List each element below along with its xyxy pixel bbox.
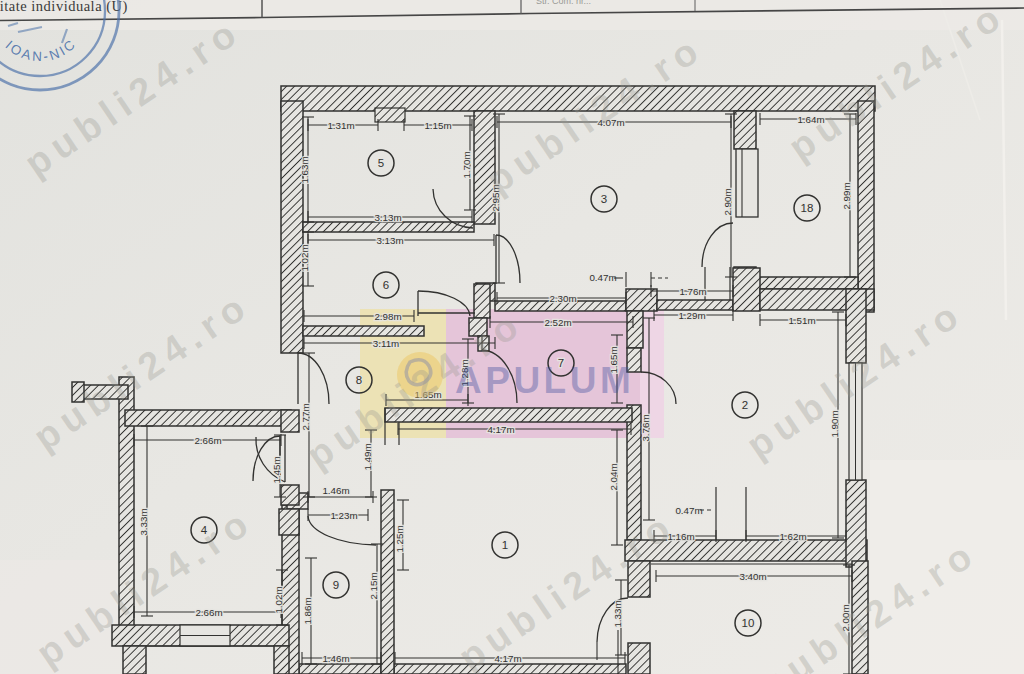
svg-text:1.76m: 1.76m xyxy=(679,286,706,297)
svg-text:9: 9 xyxy=(333,579,339,591)
svg-text:1.29m: 1.29m xyxy=(678,310,705,321)
svg-text:1.46m: 1.46m xyxy=(322,653,349,664)
svg-text:1.23m: 1.23m xyxy=(330,510,357,521)
svg-text:1: 1 xyxy=(502,539,508,551)
svg-text:2.90m: 2.90m xyxy=(722,188,733,215)
svg-text:3.76m: 3.76m xyxy=(640,414,651,441)
svg-text:2.66m: 2.66m xyxy=(195,607,222,618)
svg-text:6: 6 xyxy=(383,279,389,291)
svg-text:1.25m: 1.25m xyxy=(394,525,405,552)
svg-text:1.86m: 1.86m xyxy=(302,597,313,624)
svg-text:10: 10 xyxy=(742,617,755,629)
svg-text:1.63m: 1.63m xyxy=(299,156,310,183)
svg-text:1.31m: 1.31m xyxy=(327,120,354,131)
svg-text:3.13m: 3.13m xyxy=(376,235,403,246)
svg-text:2.66m: 2.66m xyxy=(194,435,221,446)
svg-text:0.47m: 0.47m xyxy=(589,272,616,283)
svg-text:nitate individuala (U): nitate individuala (U) xyxy=(0,0,128,15)
svg-text:2.77m: 2.77m xyxy=(300,403,311,430)
svg-text:2: 2 xyxy=(742,399,748,411)
svg-text:3: 3 xyxy=(601,193,607,205)
svg-text:3.40m: 3.40m xyxy=(739,571,766,582)
svg-text:18: 18 xyxy=(801,202,814,214)
svg-text:2.30m: 2.30m xyxy=(549,293,576,304)
svg-text:1.45m: 1.45m xyxy=(271,456,282,483)
svg-text:2.98m: 2.98m xyxy=(374,311,401,322)
svg-text:1.33m: 1.33m xyxy=(612,600,623,627)
svg-text:4.17m: 4.17m xyxy=(487,424,514,435)
svg-text:3.11m: 3.11m xyxy=(373,338,400,349)
svg-text:3.13m: 3.13m xyxy=(374,212,401,223)
svg-text:1.46m: 1.46m xyxy=(322,485,349,496)
svg-text:1.62m: 1.62m xyxy=(779,531,806,542)
svg-text:8: 8 xyxy=(356,374,362,386)
svg-text:2.99m: 2.99m xyxy=(841,182,852,209)
svg-text:2.52m: 2.52m xyxy=(544,317,571,328)
svg-text:1.02m: 1.02m xyxy=(299,244,310,271)
svg-text:1.70m: 1.70m xyxy=(461,151,472,178)
svg-text:1.02m: 1.02m xyxy=(273,586,284,613)
svg-text:Str. Com. nr...: Str. Com. nr... xyxy=(536,0,591,6)
svg-text:2.04m: 2.04m xyxy=(608,463,619,490)
svg-text:2.15m: 2.15m xyxy=(368,572,379,599)
svg-text:3.33m: 3.33m xyxy=(138,508,149,535)
svg-text:5: 5 xyxy=(378,157,384,169)
svg-text:1.15m: 1.15m xyxy=(424,120,451,131)
svg-text:1.51m: 1.51m xyxy=(788,315,815,326)
svg-text:0.47m: 0.47m xyxy=(675,505,702,516)
